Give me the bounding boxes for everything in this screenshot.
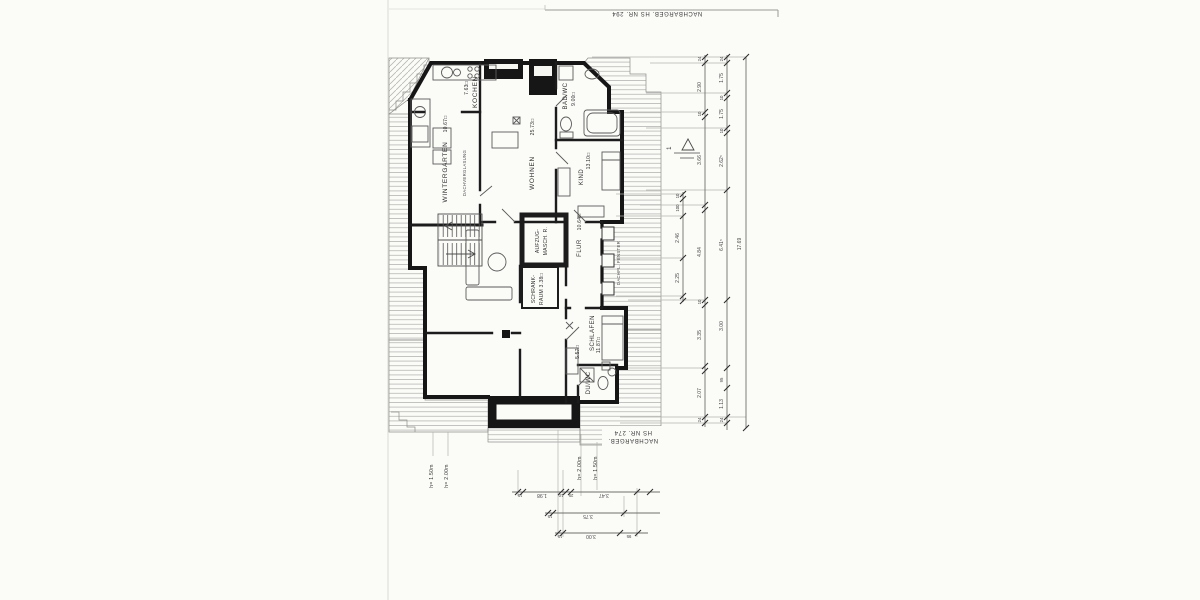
height-label: h= 2.00m xyxy=(577,456,583,479)
height-label: h= 2.00m xyxy=(444,464,450,487)
dim-label: 15 xyxy=(547,514,552,519)
room-label-schrank-1: SCHRANK- xyxy=(531,275,537,304)
room-label-kind: KIND xyxy=(579,169,585,186)
dim-label: 3.35 xyxy=(697,330,703,340)
room-label-duwc: DU/WC xyxy=(586,371,592,394)
dim-label: 24 xyxy=(719,417,724,422)
dim-label: 24 xyxy=(697,417,702,422)
dim-label: 4.84 xyxy=(697,247,703,257)
label-dachverglasung: DACHVERGLASUNG xyxy=(462,150,467,197)
room-label-aufzug-1: AUFZUG- xyxy=(535,229,541,253)
room-area-wintergarten: 10.67□ xyxy=(443,116,449,133)
scan-artifacts xyxy=(0,0,1200,600)
dim-label: 1.75 xyxy=(719,109,725,119)
dim-label: 10 xyxy=(719,95,724,100)
scanned-floor-plan-page: 10 100 2.46 2.25 24 2.90 10 3.66 4.84 10… xyxy=(0,0,1200,600)
dim-label: 10 xyxy=(697,299,702,304)
dim-label: 3.66 xyxy=(697,155,703,165)
roof-windows xyxy=(602,227,614,295)
dim-label: 2.90 xyxy=(697,82,703,92)
room-area-bad: 9.00□ xyxy=(571,92,577,106)
dim-label: 2.25 xyxy=(675,273,681,283)
dim-label: 10 xyxy=(697,111,702,116)
room-label-wintergarten: WINTERGARTEN xyxy=(442,141,449,202)
label-dachfenster: DACHFL. FENSTER xyxy=(616,241,621,285)
dim-label: 95 xyxy=(719,377,724,382)
shaft-block-2 xyxy=(529,59,557,95)
dim-label: 95 xyxy=(626,534,631,539)
dim-label: 2.07 xyxy=(697,388,703,398)
roof-window-1 xyxy=(602,227,614,240)
floor-plan-drawing: 10 100 2.46 2.25 24 2.90 10 3.66 4.84 10… xyxy=(0,0,1200,600)
section-number: 1 xyxy=(667,146,673,150)
dim-label: 1.75 xyxy=(719,73,725,83)
neighbor-label-bottom-2: HS NR. 274 xyxy=(614,429,652,435)
dim-label: 3.00 xyxy=(719,321,725,331)
dim-label: 1.13 xyxy=(719,399,725,409)
dim-label: 6.41⁵ xyxy=(719,239,725,251)
room-label-aufzug-2: MASCH. R. xyxy=(543,227,549,256)
room-label-wohnen: WOHNEN xyxy=(529,156,536,190)
room-label-kochen: KOCHEN xyxy=(472,76,479,108)
dim-label: 3.47 xyxy=(599,492,609,498)
neighbor-label-top: NACHBARGEB. HS NR. 294 xyxy=(612,10,703,16)
dim-label: 2.46 xyxy=(675,233,681,243)
dim-label: 10 xyxy=(719,128,724,133)
dim-label: 24 xyxy=(697,56,702,61)
height-label: h= 1.50m xyxy=(429,464,435,487)
room-area-kind: 13.10□ xyxy=(586,153,592,170)
room-label-flur: FLUR xyxy=(577,239,583,257)
dim-label: 25 xyxy=(568,493,573,498)
dim-label-total: 17.69 xyxy=(737,238,743,251)
dim-label: 24 xyxy=(719,56,724,61)
room-label-schrank-2: RAUM 3.38□ xyxy=(539,273,545,305)
dim-label: 15 xyxy=(557,534,562,539)
room-area-kochen: 7.63□ xyxy=(464,81,470,95)
dim-label: 3.75 xyxy=(583,513,593,519)
room-area-schlafen: 11.87□ xyxy=(596,337,602,353)
staircase xyxy=(438,214,482,266)
height-label: h= 1.50m xyxy=(593,456,599,479)
dim-label: 10 xyxy=(675,193,680,198)
dim-label: 1.98 xyxy=(537,492,547,498)
neighbor-label-bottom-1: NACHBARGEB. xyxy=(608,437,658,443)
room-label-bad: BAD/WC xyxy=(563,82,569,109)
room-area-wohnen: 25.73□ xyxy=(530,119,536,136)
room-area-duwc: 5.57□ xyxy=(575,345,581,359)
dim-label: 3.00 xyxy=(586,533,596,539)
roof-window-2 xyxy=(602,254,614,267)
room-area-flur: 10.64□ xyxy=(577,214,583,231)
page-background xyxy=(0,0,1200,600)
dim-label: 100 xyxy=(675,204,680,212)
dim-label: 2.62⁵ xyxy=(719,155,725,167)
dim-label: 10 xyxy=(558,493,563,498)
roof-window-3 xyxy=(602,282,614,295)
dim-label: 15 xyxy=(517,493,522,498)
